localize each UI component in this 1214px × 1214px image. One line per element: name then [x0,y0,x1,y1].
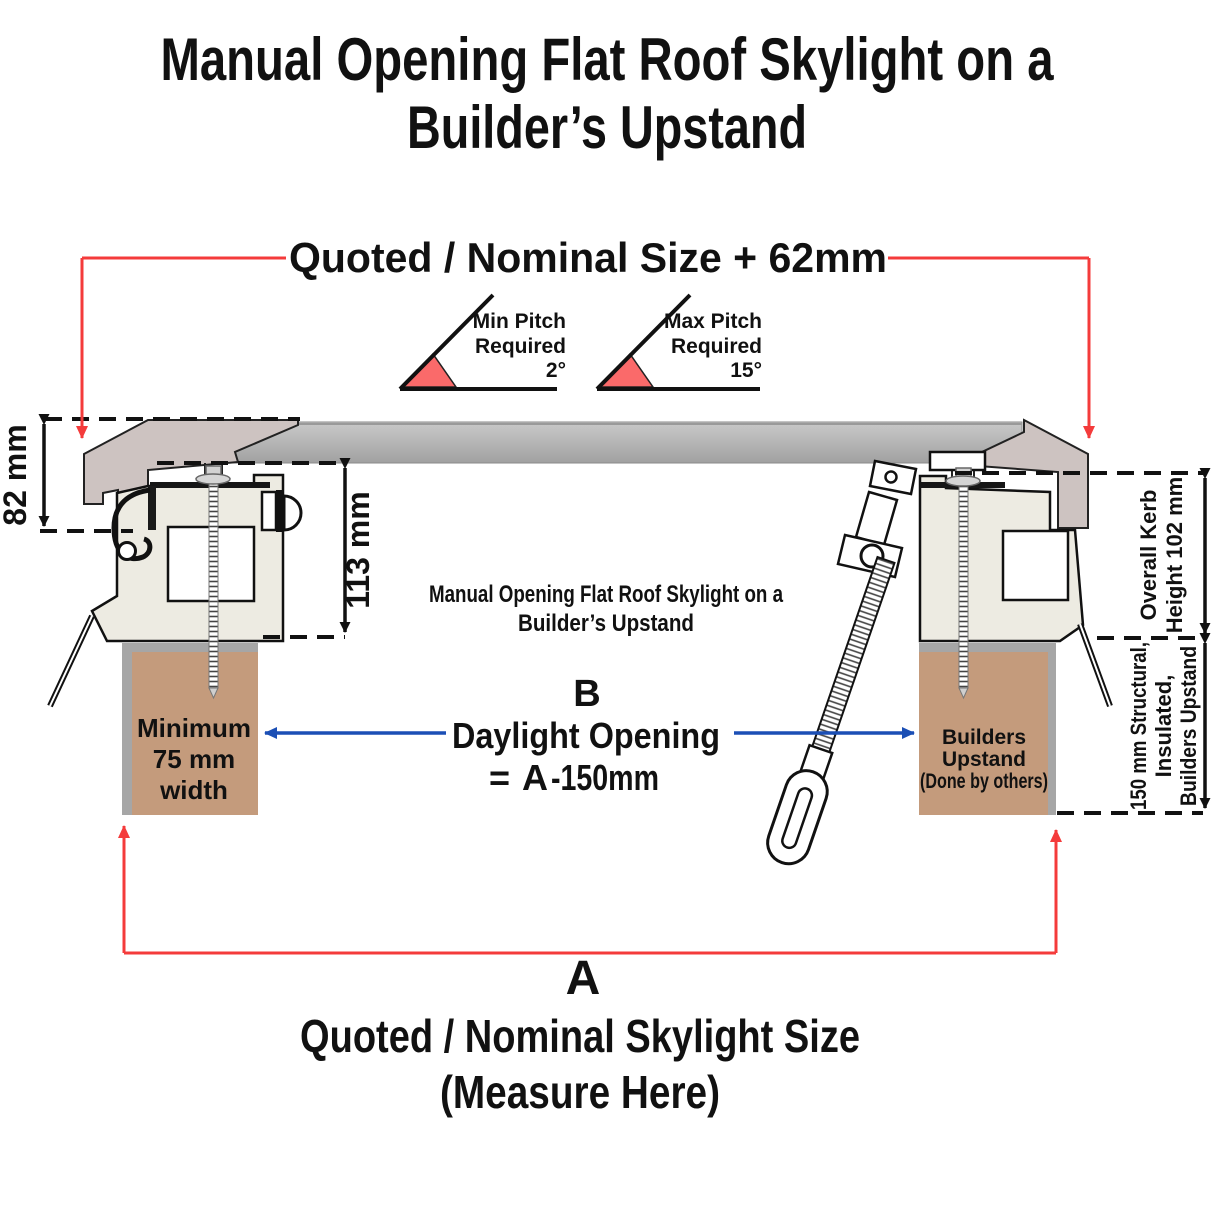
bottom-dimension-letter: A [566,952,601,1005]
kerb-frame-height-label: 113 mm [340,491,376,608]
left-keeper-plate [262,492,276,530]
frame-height-label: 82 mm [0,424,33,525]
overall-kerb-label-1: Overall Kerb [1136,490,1161,621]
min-pitch-label-2: Required [475,335,566,358]
structural-label-1: 150 mm Structural, [1126,642,1151,810]
top-red-dimension: Quoted / Nominal Size + 62mm [82,234,1089,438]
opener-handle-loop [762,765,833,869]
daylight-letter: B [573,673,600,715]
left-upstand-label-1: Minimum [137,713,251,743]
bottom-dimension-line1: Quoted / Nominal Skylight Size [300,1010,860,1062]
max-pitch-value: 15° [730,359,762,382]
daylight-label: Daylight Opening [452,715,720,756]
opener-rod [762,553,906,869]
right-upstand-label-2: Upstand [942,748,1026,771]
right-upstand-label-3: (Done by others) [920,770,1048,793]
right-upstand-label-1: Builders [942,726,1026,749]
left-lock-knob [284,496,301,530]
bottom-red-dimension: A Quoted / Nominal Skylight Size (Measur… [124,826,1056,1118]
diagram-canvas: Manual Opening Flat Roof Skylight on a B… [0,0,1214,1214]
left-hinge-knuckle [119,543,136,560]
left-upstand-label-2: 75 mm [153,744,235,774]
center-label-line1: Manual Opening Flat Roof Skylight on a [429,581,784,608]
left-builders-upstand: Minimum 75 mm width [122,643,258,815]
skylight-diagram: Manual Opening Flat Roof Skylight on a B… [0,0,1214,1214]
daylight-rest: -150mm [551,757,659,798]
manual-opener-mechanism [762,461,916,869]
structural-label-2: Insulated, [1151,675,1176,778]
page-title-line1: Manual Opening Flat Roof Skylight on a [161,26,1054,93]
top-dimension-label: Quoted / Nominal Size + 62mm [289,234,887,281]
min-pitch-label-1: Min Pitch [473,310,566,333]
max-pitch-label-1: Max Pitch [664,310,762,333]
min-pitch-indicator: Min Pitch Required 2° [400,295,566,389]
bottom-dimension-line2: (Measure Here) [440,1066,720,1118]
overall-kerb-label-2: Height 102 mm [1162,477,1187,634]
page-title-line2: Builder’s Upstand [407,94,807,161]
structural-label-3: Builders Upstand [1176,646,1201,806]
max-pitch-label-2: Required [671,335,762,358]
max-pitch-indicator: Max Pitch Required 15° [597,295,762,389]
daylight-a: A [522,757,548,798]
opener-arm [856,492,897,545]
min-pitch-value: 2° [546,359,566,382]
left-upstand-label-3: width [159,775,228,805]
daylight-eq: = [489,757,510,798]
right-builders-upstand: Builders Upstand (Done by others) [919,643,1056,815]
center-label-line2: Builder’s Upstand [518,610,694,637]
